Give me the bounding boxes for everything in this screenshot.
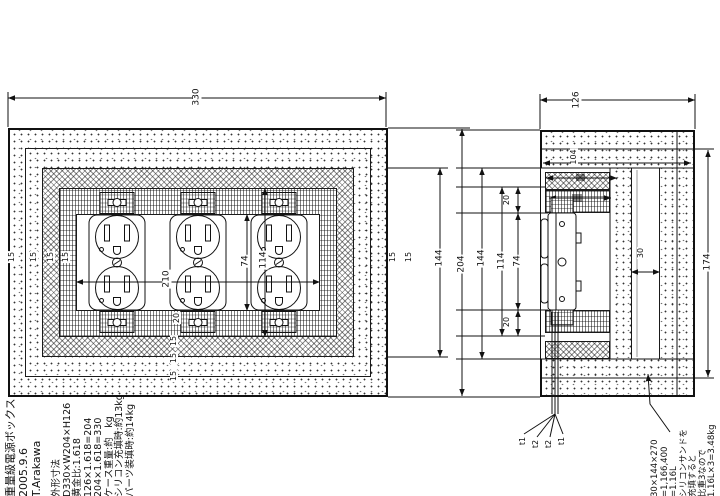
dim-front-outlet-span: 210 [163,269,172,288]
volume-note-line: 1.16L×3=3.48kg [708,419,718,496]
dim-front-opening-height: 114 [260,250,269,269]
wire-label-3: t2 [545,439,553,449]
spec-line: パーツ装填時:約14kg [126,379,137,496]
wire-label-2: t2 [532,439,540,449]
dim-side-depth: 126 [573,90,582,109]
dim-front-wall-l3: 15 [47,251,55,263]
dim-front-width: 330 [193,87,202,106]
drawing-author: T.Arakawa [30,397,43,496]
wire-label-4: t1 [558,436,566,446]
dim-side-case-height: 174 [704,252,713,271]
dim-side-frame-bottom: 20 [503,316,511,328]
dim-front-wall-l2: 15 [30,251,38,263]
dim-side-outlet-height: 74 [514,254,523,267]
dim-front-height: 204 [458,254,467,273]
dim-front-outlet-height: 74 [242,254,251,267]
dim-front-wall-b1: 15 [170,335,178,347]
spec-block: 外形寸法 D330×W204×H126 黄金比:1.618 126×1.618=… [52,379,136,496]
outlet-unit-1 [89,193,145,333]
dim-front-wall-b3: 15 [170,370,178,382]
dim-side-frame-top: 20 [503,194,511,206]
drawing-canvas: 330 210 74 114 144 204 20 15 15 15 15 15… [0,0,720,496]
dim-side-cavity-height: 144 [478,248,487,267]
spec-line: シリコン充填時:約13kg [115,379,126,496]
dim-front-frame-bottom: 20 [173,312,181,324]
spec-line: 204×1.618=330 [94,379,105,496]
drawing-title: 重量級電源ボックス [4,397,17,496]
dim-front-wall-l1: 15 [8,251,16,263]
volume-note: 30×144×270 =1,166,400 =1.16L シリコンサンドを 充填… [651,419,718,496]
dim-side-inner-depth: 104 [570,148,578,165]
dim-front-wall-l4: 15 [62,251,70,263]
dim-front-wall-r1: 15 [389,251,397,263]
title-block: 重量級電源ボックス 2005.9.6 T.Arakawa [4,397,43,496]
wire-label-1: t1 [519,436,527,446]
spec-line: 黄金比:1.618 [73,379,84,496]
dim-front-wall-r2: 15 [405,251,413,263]
spec-line: 外形寸法 [52,379,63,496]
dim-front-wall-b2: 15 [170,352,178,364]
dim-side-opening-height: 114 [498,251,507,270]
dim-side-sand-thickness: 30 [637,247,645,259]
drawing-date: 2005.9.6 [17,397,30,496]
dim-front-inner-height: 144 [436,248,445,267]
